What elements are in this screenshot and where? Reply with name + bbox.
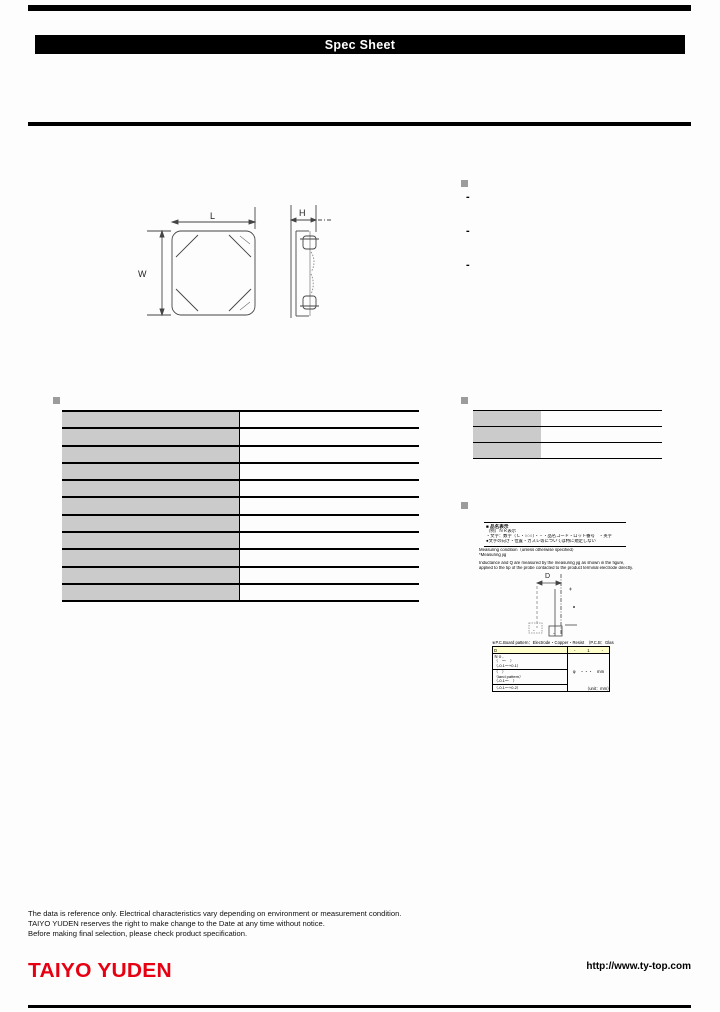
land-group-top: Ｎｏ．（ ～ ）（-0.1～+0.1） (493, 654, 567, 669)
taiyo-yuden-logo: TAIYO YUDEN (28, 960, 172, 983)
info-value-cell (541, 411, 662, 426)
table-row (62, 548, 419, 565)
chamfer-lines (176, 235, 251, 311)
spec-value-cell (239, 447, 419, 462)
spec-label-cell (62, 533, 239, 548)
list-item: - (466, 261, 470, 269)
dim-label-h: H (299, 208, 306, 218)
terminal-bottom (303, 296, 316, 309)
spec-value-cell (239, 516, 419, 531)
table-row (62, 514, 419, 531)
footer-note-line: TAIYO YUDEN reserves the right to make c… (28, 919, 588, 929)
info-table (473, 410, 662, 459)
table-row (62, 479, 419, 496)
info-label-cell (473, 443, 541, 458)
package-outline (172, 231, 255, 315)
info-value-cell (541, 427, 662, 442)
table-row (62, 410, 419, 427)
land-header-values: -1- (567, 647, 609, 653)
spec-label-cell (62, 481, 239, 496)
spec-label-cell (62, 464, 239, 479)
spec-label-cell (62, 568, 239, 583)
spec-table (62, 410, 419, 602)
feature-list: --- (466, 193, 470, 295)
section-bullet-spec-table (53, 397, 60, 404)
land-header-value: 1 (587, 648, 589, 653)
land-line: （-0.1～+0.2） (494, 686, 566, 691)
package-dimension-drawing: L W H (55, 185, 425, 345)
footer-note-line: Before making final selection, please ch… (28, 929, 588, 939)
top-rule (28, 5, 691, 11)
section-bullet-features (461, 180, 468, 187)
jig-note-lines: Measuring condition（unless otherwise spe… (479, 548, 645, 557)
jig-terminal (549, 626, 562, 636)
dim-label-l: L (210, 211, 215, 221)
land-header-value: - (602, 648, 603, 653)
table-row (62, 427, 419, 444)
land-table-left-column: Ｎｏ．（ ～ ）（-0.1～+0.1） （ ）（land pattern）（-0… (493, 654, 568, 691)
land-line: （-0.1～+0.1） (494, 664, 566, 669)
list-item: - (466, 227, 470, 235)
table-row (62, 445, 419, 462)
dim-label-w: W (138, 269, 147, 279)
marking-line: ●文字の向き・位置・カスレ等については特に規定しない (486, 539, 624, 544)
section-bullet-measuring (461, 502, 468, 509)
footer-note-line: The data is reference only. Electrical c… (28, 909, 588, 919)
info-value-cell (541, 443, 662, 458)
spec-label-cell (62, 447, 239, 462)
land-group-bottom: （-0.1～+0.2） (493, 684, 567, 691)
table-row (473, 426, 662, 442)
bottom-rule (28, 1005, 691, 1008)
table-row (62, 531, 419, 548)
dim-label-d: D (545, 573, 550, 580)
land-group-mid: （ ）（land pattern）（-0.1～ ） (493, 669, 567, 685)
spec-value-cell (239, 481, 419, 496)
marking-lines: （例）ＮＲ表示・文字：数字（Ｃ・○○○）・・・品名コード・ロット番号 ・英字●文… (486, 529, 624, 543)
land-header-label: D (493, 648, 567, 653)
spec-label-cell (62, 550, 239, 565)
page-title: Spec Sheet (325, 38, 395, 52)
table-row (62, 462, 419, 479)
website-url-link[interactable]: http://www.ty-top.com (586, 961, 691, 972)
spec-value-cell (239, 429, 419, 444)
footer-notes: The data is reference only. Electrical c… (28, 909, 588, 939)
table-row (62, 496, 419, 513)
measuring-jig-drawing: D - - (503, 566, 607, 644)
section-bullet-info-table (461, 397, 468, 404)
land-header-value: - (574, 648, 575, 653)
land-table: D -1- Ｎｏ．（ ～ ）（-0.1～+0.1） （ ）（land patte… (492, 646, 610, 692)
spec-label-cell (62, 498, 239, 513)
terminal-top (303, 236, 316, 249)
spec-value-cell (239, 412, 419, 427)
spec-sheet-page: Spec Sheet (0, 0, 720, 1012)
winding-dotted-arcs (311, 252, 314, 294)
table-row (62, 583, 419, 600)
jig-dot-mark (573, 606, 574, 607)
spec-label-cell (62, 585, 239, 600)
jig-plus-mark (569, 588, 572, 591)
spec-value-cell (239, 585, 419, 600)
spec-value-cell (239, 568, 419, 583)
spec-label-cell (62, 429, 239, 444)
table-row (62, 566, 419, 583)
title-banner: Spec Sheet (35, 35, 685, 54)
info-label-cell (473, 411, 541, 426)
spec-value-cell (239, 464, 419, 479)
table-row (473, 410, 662, 426)
spec-value-cell (239, 498, 419, 513)
unit-note: （unit：mm） (585, 686, 611, 692)
land-line: （-0.1～ ） (494, 679, 566, 684)
spec-value-cell (239, 550, 419, 565)
spec-label-cell (62, 412, 239, 427)
spec-label-cell (62, 516, 239, 531)
jig-terminal-ghost (529, 623, 542, 633)
header-rule (28, 122, 691, 126)
marking-box: ■ 品名表示 （例）ＮＲ表示・文字：数字（Ｃ・○○○）・・・品名コード・ロット番… (484, 522, 626, 547)
list-item: - (466, 193, 470, 201)
land-table-header-row: D -1- (493, 647, 609, 654)
table-row (473, 442, 662, 458)
info-label-cell (473, 427, 541, 442)
spec-value-cell (239, 533, 419, 548)
